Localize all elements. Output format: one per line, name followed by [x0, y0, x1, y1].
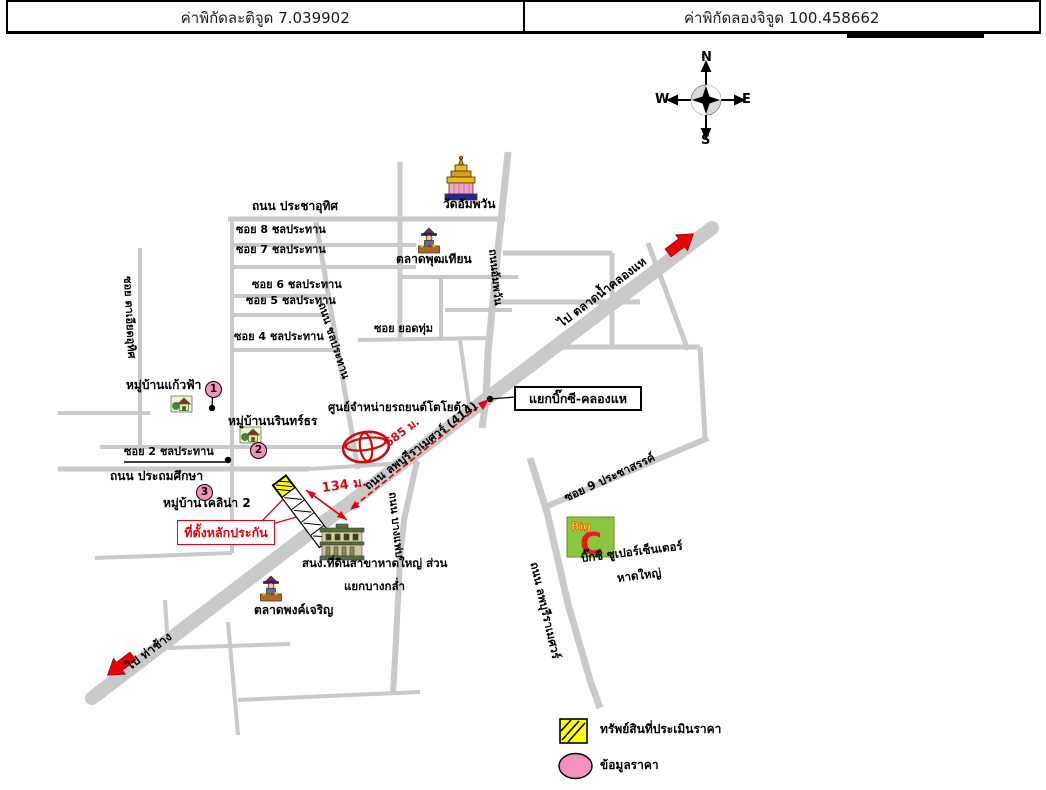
price-marker-3: 3	[196, 484, 213, 501]
wat-ampawan-label: วัดอัมพวัน	[443, 198, 496, 211]
junction-callout-box: แยกบิ๊กซี-คลองแห	[514, 386, 642, 411]
compass-s-label: S	[701, 133, 710, 148]
kaewfa-dot	[209, 405, 214, 410]
compass-rose-icon	[666, 60, 746, 140]
price-marker-1: 1	[205, 381, 222, 398]
compass-w-label: W	[655, 92, 669, 107]
compass-e-label: E	[742, 92, 751, 107]
toyota-dealer-label: ศูนย์จำหน่ายรถยนต์โตโยต้า	[328, 401, 467, 414]
road-soi7-label: ซอย 7 ชลประทาน	[236, 244, 326, 256]
road-soi2-label: ซอย 2 ชลประทาน	[124, 446, 214, 458]
soi2-dot	[225, 457, 230, 462]
legend-property-swatch	[560, 719, 587, 743]
market-pongcharoen-icon	[261, 576, 282, 601]
road-soi4-label: ซอย 4 ชลประทาน	[234, 331, 324, 343]
price-marker-2: 2	[250, 442, 267, 459]
village-kaewfa-label: หมู่บ้านแก้วฟ้า	[126, 379, 201, 392]
land-office-label-line1: สนง.ที่ดินสาขาหาดใหญ่ ส่วน	[302, 557, 447, 570]
kaewfa-house-icon	[171, 396, 192, 412]
market-phutthian-icon	[419, 228, 440, 253]
market-pongcharoen-label: ตลาดพงค์เจริญ	[254, 604, 333, 617]
road-soi6-label: ซอย 6 ชลประทาน	[252, 279, 342, 291]
legend-price-label: ข้อมูลราคา	[600, 759, 659, 772]
market-phutthian-label: ตลาดพุฒเทียน	[396, 253, 472, 266]
legend-property-label: ทรัพย์สินที่ประเมินราคา	[600, 723, 721, 736]
road-prathomsuksa-label: ถนน ประถมศึกษา	[110, 470, 203, 483]
measure-134-arrowhead-a	[306, 490, 316, 499]
land-office-icon	[320, 524, 364, 560]
road-prachauthit-label: ถนน ประชาอุทิศ	[252, 200, 338, 213]
road-yodthum-label: ซอย ยอดทุ่ม	[374, 323, 433, 335]
road-soi8-label: ซอย 8 ชลประทาน	[236, 224, 326, 236]
map-page: ค่าพิกัดละติจูด 7.039902 ค่าพิกัดลองจิจู…	[0, 0, 1046, 790]
road-yodthum-line	[358, 338, 490, 340]
temple-icon	[445, 156, 477, 200]
village-narinthon-label: หมู่บ้านนรินทร์ธร	[228, 415, 317, 428]
legend-price-swatch	[559, 754, 592, 779]
junction-dot	[487, 396, 492, 401]
narinthon-house-icon	[240, 427, 261, 443]
collateral-callout-box: ที่ตั้งหลักประกัน	[177, 520, 275, 545]
land-office-label-line2: แยกบางกล่ำ	[344, 580, 405, 593]
compass-n-label: N	[701, 50, 712, 65]
